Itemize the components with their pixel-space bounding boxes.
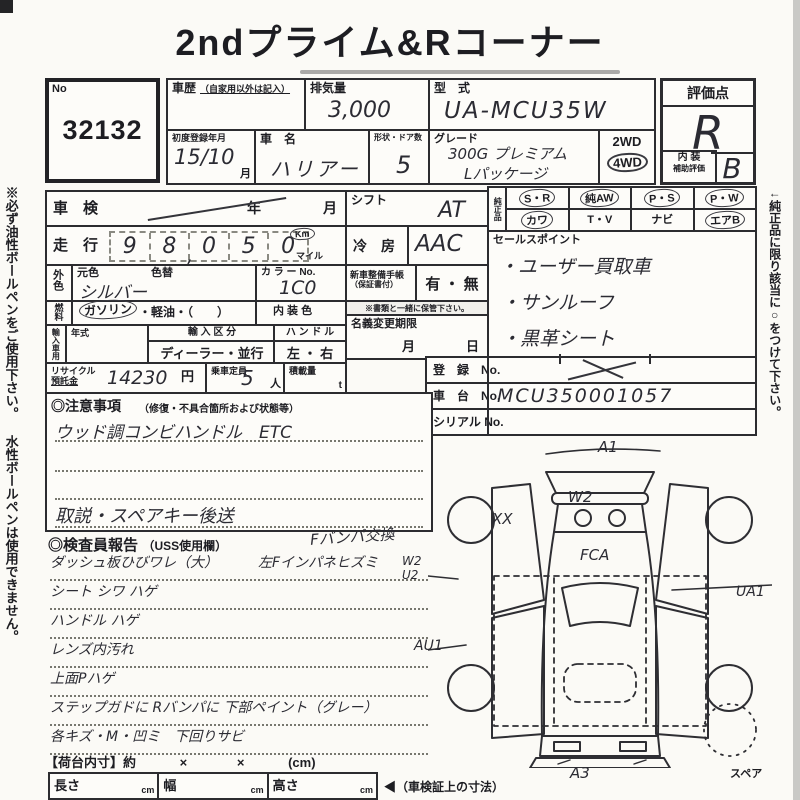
service-book-cell: 新車整備手帳 （保証書付） 有 ・ 無 [345,264,489,302]
service-book-value: 有 ・ 無 [415,266,487,300]
width-unit: cm [251,785,264,795]
scan-smudge [300,70,620,74]
oem-leather: カワ [521,210,554,230]
model-year-label: 年式 [71,328,89,338]
strike-mark [568,362,636,381]
handle-value: 左 ・ 右 [275,342,345,362]
displacement-label: 排気量 [310,82,346,96]
load-unit: t [339,380,342,392]
displacement-cell: 排気量 3,000 [304,78,430,131]
fuel-row: 燃料 ガソリン ・軽油・（ ） 内 装 色 [45,300,347,326]
cautions-box: ◎注意事項 （修復・不具合箇所および状態等） ウッド調コンビハンドル ETC 取… [45,392,433,532]
unit-km-circled: Km [290,227,315,240]
registration-no-row: 登 録 No. [425,356,757,384]
drive-type-cell: 2WD 4WD [598,129,656,185]
width-label: 幅 [163,779,176,794]
cautions-label: ◎注意事項 [51,396,121,416]
import-row: 輸入車用 年式 輸 入 区 分 ディーラー・並行 ハ ン ド ル 左 ・ 右 [45,324,347,364]
color-no-value: 1C0 [279,277,316,299]
car-top-view-drawing [428,438,772,768]
lot-number-label: No [52,83,67,96]
recycle-value: 14230 [107,367,167,389]
interior-score-label-sub: 補助評価 [663,164,715,173]
bed-dims-x2: × [237,755,245,770]
dimensions-table: 長さ cm 幅 cm 高さ cm [48,772,378,800]
damage-code-fca: FCA [580,546,609,564]
chassis-no-value: MCU350001057 [497,385,673,407]
transfer-deadline-label: 名義変更期限 [351,318,417,331]
car-name-cell: 車 名 ハリアー [254,129,370,185]
damage-code-w2-side: W2 [402,554,422,568]
fuel-gasoline-circled: ガソリン [79,298,138,320]
ac-label: 冷 房 [353,238,395,254]
shaken-month-label: 月 [323,200,337,216]
page-title: 2ndプライム&Rコーナー [0,14,780,66]
fuel-options-rest: ・軽油・（ ） [139,306,229,320]
inspector-line: 上面Pハゲ [50,668,428,697]
damage-code-au1: AU1 [414,638,443,654]
service-book-label: 新車整備手帳 [350,270,404,280]
shift-label: シフト [351,194,387,208]
recycle-unit: 円 [181,370,194,385]
bed-dims-label: 【荷台内寸】約 [45,755,136,770]
drive-4wd-circled: 4WD [606,152,648,173]
height-label: 高さ [273,779,299,794]
doors-cell: 形状・ドア数 5 [368,129,430,185]
serial-no-row: シリアル No. [425,408,757,436]
history-cell: 車歴 （自家用以外は記入） [166,78,306,131]
lot-number-box: No 32132 [45,78,160,183]
inspector-lines: ダッシュ板ひびワレ（大） 左Fインパネヒズミ シート シワ ハゲ ハンドル ハゲ… [50,552,428,755]
oem-alloy-wheels: 純AW [580,188,620,208]
ac-cell: 冷 房 AAC [345,225,489,266]
bed-dims-unit: (cm) [288,755,315,770]
oem-navi: ナビ [632,210,695,230]
grade-value-line2: Lパッケージ [464,163,547,184]
height-unit: cm [360,785,373,795]
dims-note: ◀（車検証上の寸法） [384,778,504,795]
spare-tire-label: スペア [730,768,762,781]
shaken-label: 車 検 [53,200,98,217]
handle-label: ハ ン ド ル [275,326,345,342]
doors-value: 5 [396,151,411,179]
exterior-color-row: 外色 元色 色替 シルバー カ ラ ー No. 1C0 [45,264,347,302]
sales-point-item: ・ユーザー買取車 [499,252,651,279]
scan-edge [793,0,800,800]
sales-points-label: セールスポイント [493,234,581,247]
sales-points-box: セールスポイント ・ユーザー買取車 ・サンルーフ ・黒革シート [487,230,757,358]
grade-cell: グレード 300G プレミアム Lパッケージ [428,129,600,185]
oem-grid: 純正品 S・R 純AW P・S P・W カワ T・V ナビ エアB [487,186,757,232]
oem-group-label: 純正品 [489,188,507,230]
inspector-line: ステップガドに Rバンパに 下部ペイント（グレー） [50,697,428,726]
car-name-value: ハリアー [270,153,361,182]
scan-corner-mark [0,0,13,13]
mileage-digit: 0 [190,233,230,260]
mileage-digit: 8 [151,233,191,260]
shift-value: AT [438,198,465,223]
damage-code-a3: A3 [570,764,590,782]
bed-dims-x1: × [180,755,188,770]
load-label: 積載量 [289,366,316,376]
import-division-value: ディーラー・並行 [149,342,275,362]
damage-code-u2-side: U2 [402,568,418,582]
first-reg-value: 15∕10 [174,145,235,169]
model-code-cell: 型 式 UA-MCU35W [428,78,656,131]
inspector-line: レンズ内汚れ [50,639,428,668]
recycle-label: リサイクル [51,366,96,376]
recycle-row: リサイクル 預託金 14230 円 乗車定員 5 人 積載量 t [45,362,347,394]
sales-point-item: ・黒革シート [501,324,615,351]
damage-code-ua1: UA1 [736,584,765,600]
damage-code-w2-hood: W2 [568,488,592,506]
capacity-unit: 人 [270,378,281,391]
inspector-line: 各キズ・M・凹ミ 下回りサビ [50,726,428,755]
cautions-line-3 [55,478,423,500]
history-label: 車歴 [172,82,196,96]
oem-sunroof: S・R [519,188,556,208]
oem-tv: T・V [570,210,633,230]
length-label: 長さ [54,779,80,794]
mileage-row: 走 行 9 8 0 5 0 , Km マイル [45,225,347,266]
oem-airbag: エアB [704,210,745,230]
inspector-line: ダッシュ板ひびワレ（大） [50,555,218,571]
oem-power-steering: P・S [644,188,681,208]
mileage-digit: 5 [230,233,270,260]
fuel-group-label: 燃料 [53,303,62,321]
ext-color-group-label: 外色 [51,269,63,291]
strike-mark [582,359,623,379]
model-code-value: UA-MCU35W [444,98,608,124]
bed-dims-row: 【荷台内寸】約 × × (cm) [45,752,425,771]
car-name-label: 車 名 [260,133,296,147]
capacity-value: 5 [241,366,254,390]
transfer-day-label: 日 [466,340,479,355]
transfer-month-label: 月 [402,340,415,355]
unit-mile: マイル [296,251,323,261]
cautions-line-2 [55,450,423,472]
model-code-label: 型 式 [434,82,470,96]
drive-2wd: 2WD [600,131,654,149]
score-label: 評価点 [663,81,753,107]
cautions-label-sub: （修復・不具合箇所および状態等） [139,400,299,415]
auction-sheet: 2ndプライム&Rコーナー ※必ず油性ボールペンをご使用下さい。 水性ボールペン… [0,0,800,800]
first-reg-unit: 月 [240,168,251,181]
chassis-no-row: 車 台 No. MCU350001057 [425,382,757,410]
inspector-line: シート シワ ハゲ [50,581,428,610]
grade-value-line1: 300G プレミアム [448,143,567,164]
inspector-label-sub: （USS使用欄） [142,539,227,553]
length-unit: cm [141,785,154,795]
ac-value: AAC [415,231,463,257]
recycle-label-2: 預託金 [51,376,96,386]
history-label-sub: （自家用以外は記入） [200,84,290,94]
first-reg-cell: 初度登録年月 15∕10 月 [166,129,256,185]
displacement-value: 3,000 [328,98,391,123]
service-book-label-sub: （保証書付） [350,280,404,289]
doors-label: 形状・ドア数 [374,133,422,142]
sales-point-item: ・サンルーフ [501,288,614,315]
damage-code-xx: XX [492,510,513,528]
inspector-header-note: Fバンパ交換 [309,523,395,550]
strike-mark [148,197,287,221]
mileage-digit: 9 [111,233,151,260]
lot-number: 32132 [49,82,156,179]
oem-power-windows: P・W [705,188,745,208]
color-change-label: 色替 [151,267,173,280]
transfer-deadline-cell: 名義変更期限 月 日 [345,314,489,360]
score-box: 評価点 R 内 装 補助評価 B [660,78,756,185]
inspector-line-right: 左Fインパネヒズミ [258,552,378,572]
cautions-line-1: ウッド調コンビハンドル ETC [55,418,423,442]
first-reg-label: 初度登録年月 [172,133,226,143]
interior-color-label: 内 装 色 [273,305,312,318]
mileage-label: 走 行 [53,237,98,254]
shift-cell: シフト AT [345,190,489,227]
shaken-row: 車 検 年 月 [45,190,347,227]
damage-code-a1: A1 [598,438,618,456]
inspector-line: ハンドル ハゲ [50,610,428,639]
interior-score-value: B [711,152,753,182]
left-margin-note: ※必ず油性ボールペンをご使用下さい。 水性ボールペンは使用できません。 [4,186,18,686]
import-division-label: 輸 入 区 分 [149,326,275,342]
interior-score-label: 内 装 [663,152,715,164]
import-group-label: 輸入車用 [51,328,59,360]
car-diagram: A1 W2 XX FCA W2 U2 UA1 AU1 A3 スペア [428,438,772,768]
